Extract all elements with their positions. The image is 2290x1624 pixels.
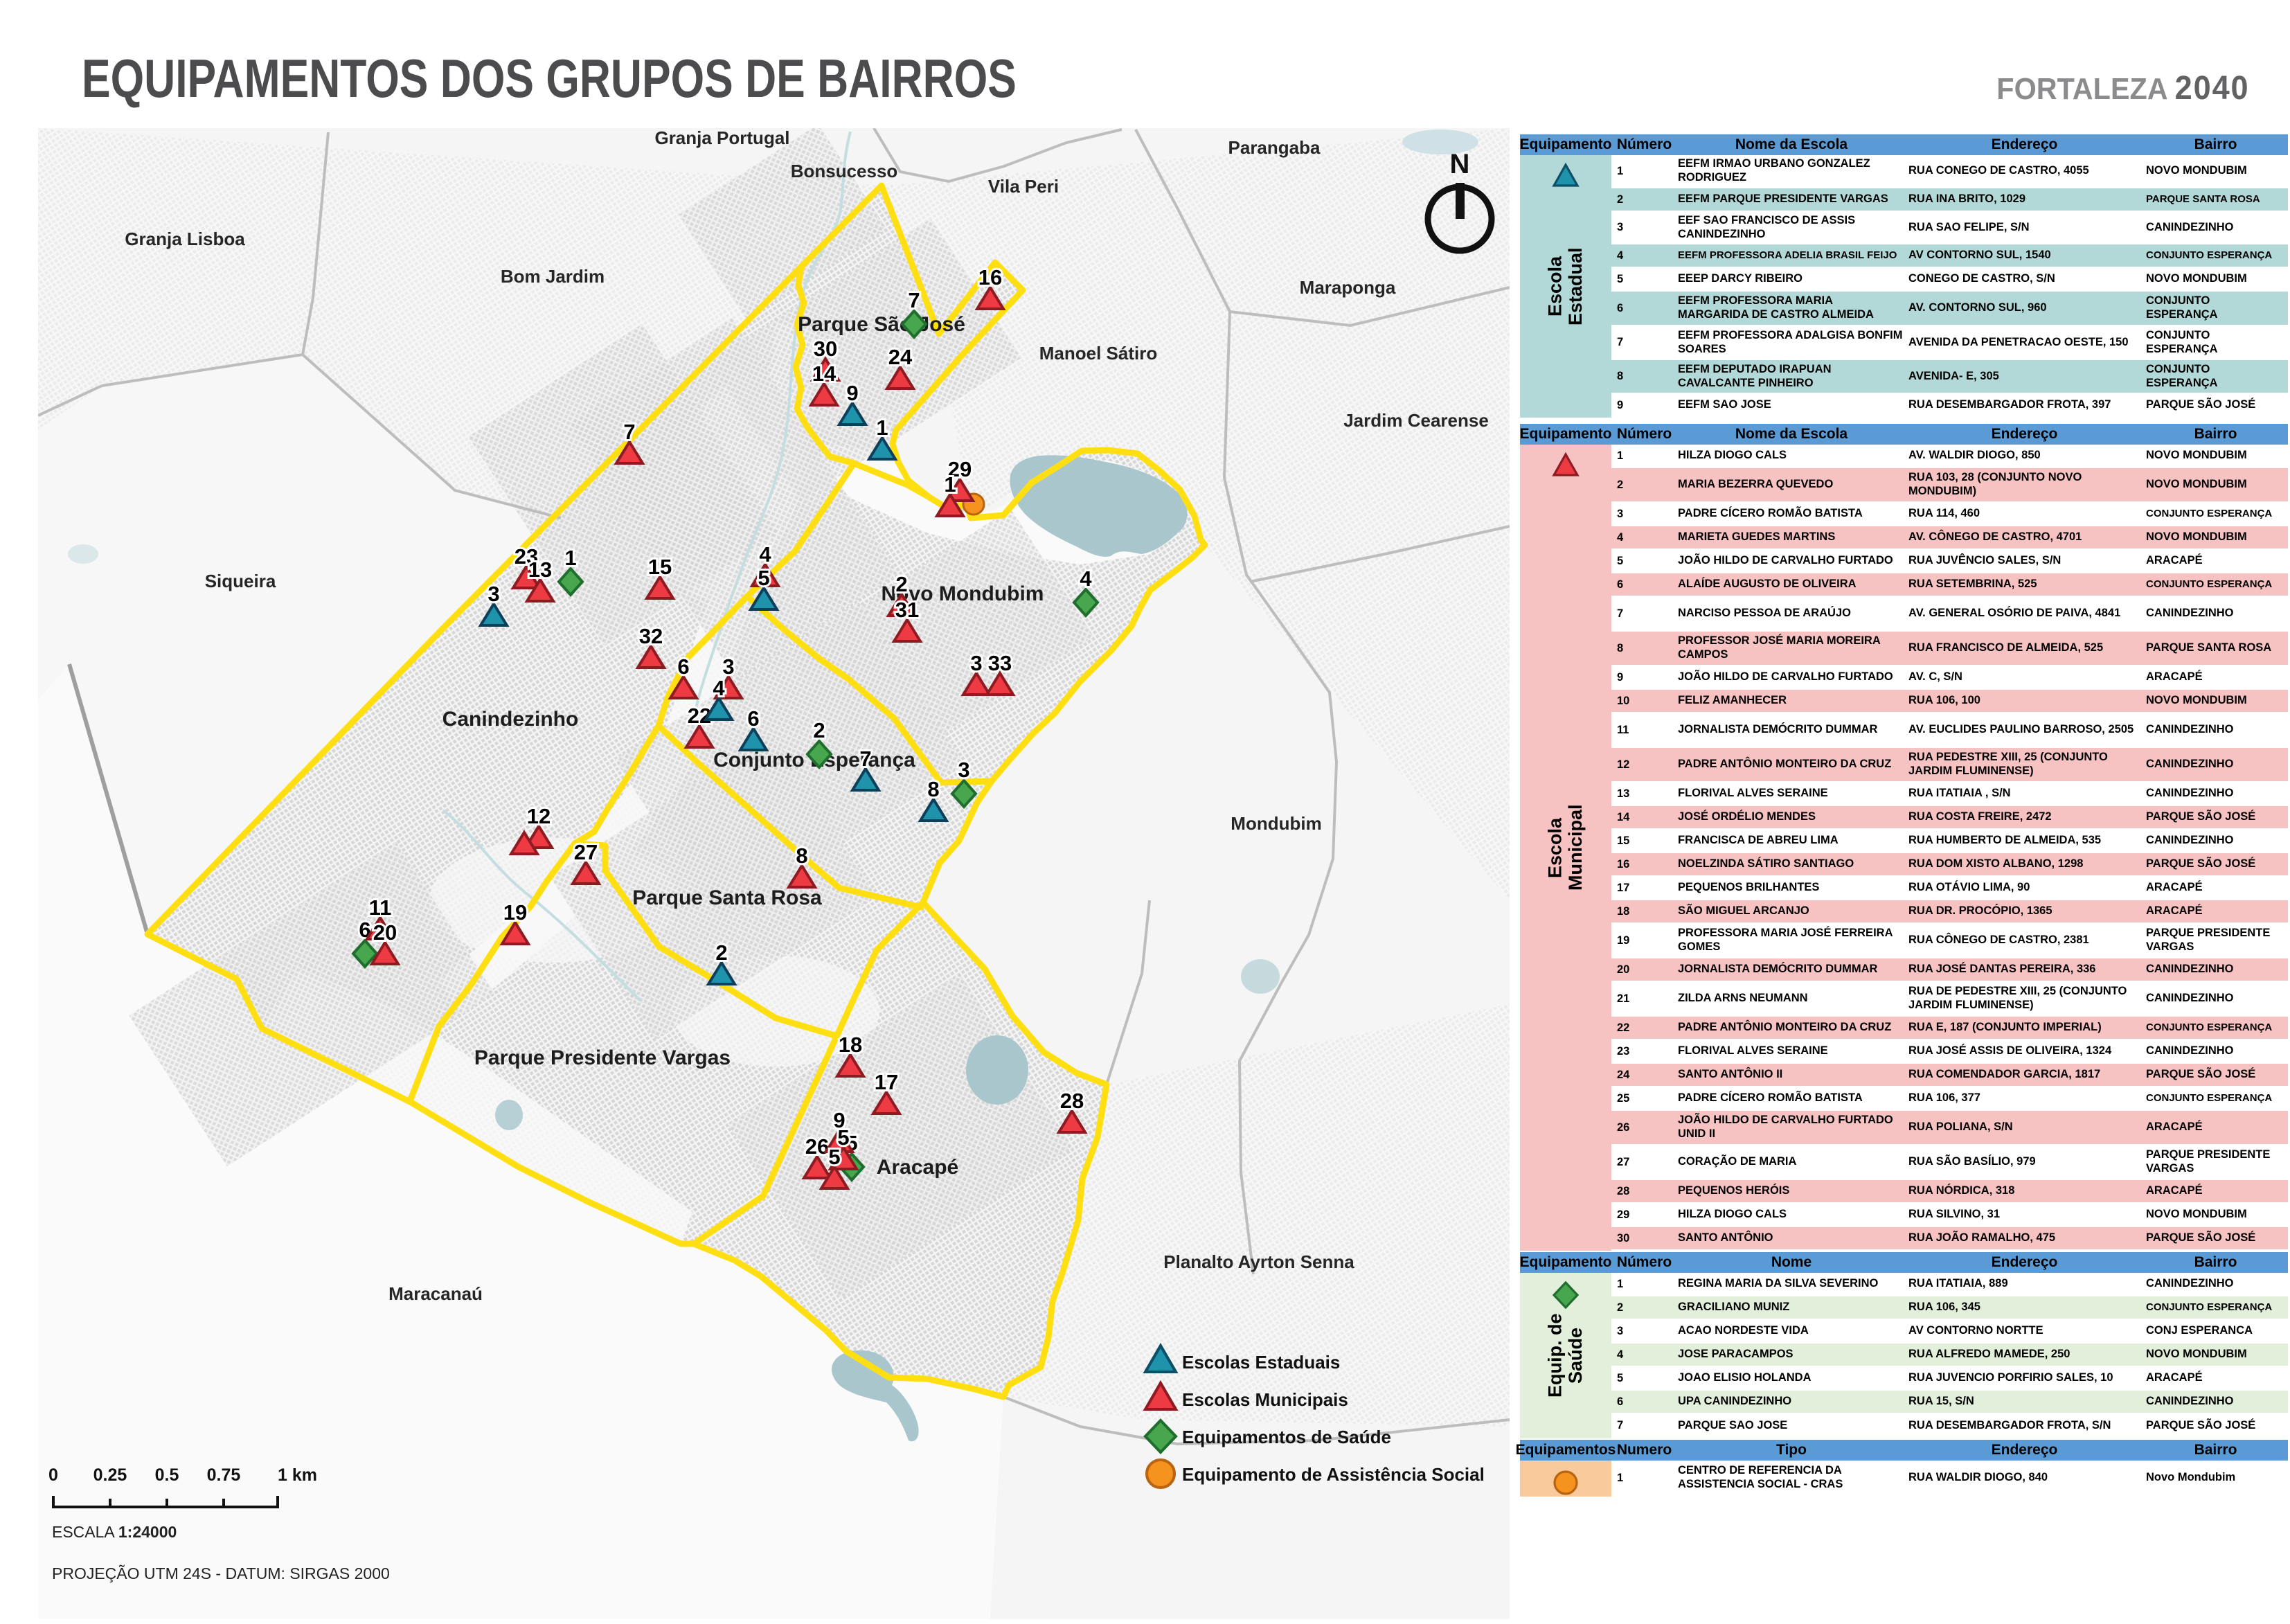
svg-text:Equipamento de Assistência Soc: Equipamento de Assistência Social [1182,1464,1485,1485]
svg-text:Bonsucesso: Bonsucesso [791,161,898,181]
svg-text:31: 31 [895,598,919,622]
svg-text:3: 3 [487,582,499,606]
svg-text:PROJEÇÃO UTM 24S - DATUM: SIRG: PROJEÇÃO UTM 24S - DATUM: SIRGAS 2000 [52,1564,390,1582]
svg-text:1: 1 [564,546,576,570]
svg-text:Escolas Estaduais: Escolas Estaduais [1182,1352,1340,1373]
svg-text:2: 2 [715,940,727,965]
svg-text:30: 30 [814,337,837,361]
svg-text:7: 7 [908,288,920,312]
svg-text:Equipamentos de Saúde: Equipamentos de Saúde [1182,1427,1391,1447]
svg-text:Mondubim: Mondubim [1231,813,1321,834]
svg-text:19: 19 [503,900,527,925]
svg-text:0: 0 [48,1465,58,1485]
svg-text:N: N [1450,149,1470,179]
svg-text:28: 28 [1060,1089,1084,1113]
svg-text:Maraponga: Maraponga [1300,277,1396,298]
svg-text:Escolas Municipais: Escolas Municipais [1182,1389,1348,1410]
svg-text:7: 7 [623,420,635,444]
svg-text:4: 4 [713,676,725,700]
svg-text:4: 4 [759,542,771,566]
svg-text:18: 18 [839,1033,862,1057]
svg-text:0.25: 0.25 [93,1465,127,1485]
svg-text:2: 2 [895,572,907,596]
svg-text:3: 3 [970,651,982,675]
svg-text:Planalto Ayrton Senna: Planalto Ayrton Senna [1163,1251,1354,1272]
svg-text:27: 27 [574,840,598,864]
svg-text:17: 17 [875,1070,898,1094]
svg-text:33: 33 [988,651,1012,675]
svg-text:Manoel Sátiro: Manoel Sátiro [1039,343,1157,364]
svg-text:1 km: 1 km [278,1465,317,1485]
svg-text:Parque Santa Rosa: Parque Santa Rosa [632,886,822,909]
svg-text:0.5: 0.5 [155,1465,179,1485]
svg-text:Maracanaú: Maracanaú [388,1283,483,1304]
svg-text:32: 32 [639,624,663,648]
svg-text:Vila Peri: Vila Peri [988,176,1059,197]
svg-text:24: 24 [888,345,913,369]
svg-text:Canindezinho: Canindezinho [442,708,579,731]
svg-text:16: 16 [978,265,1002,289]
svg-text:Granja Portugal: Granja Portugal [654,128,789,148]
svg-text:7: 7 [859,747,871,771]
svg-text:Bom Jardim: Bom Jardim [501,266,605,287]
svg-text:Jardim Cearense: Jardim Cearense [1343,410,1489,431]
svg-text:3: 3 [958,758,969,782]
svg-text:ESCALA 1:24000: ESCALA 1:24000 [52,1523,177,1541]
svg-text:1: 1 [944,472,956,497]
svg-text:Parangaba: Parangaba [1228,137,1321,158]
svg-text:Parque Presidente Vargas: Parque Presidente Vargas [474,1046,731,1069]
svg-text:15: 15 [648,555,672,579]
svg-text:Siqueira: Siqueira [205,571,276,591]
svg-text:Parque São José: Parque São José [798,313,965,336]
svg-text:11: 11 [369,895,392,920]
svg-text:8: 8 [927,777,939,801]
svg-text:13: 13 [528,557,552,582]
svg-text:3: 3 [722,654,734,679]
svg-text:6: 6 [747,706,759,731]
svg-text:14: 14 [812,362,837,386]
svg-text:20: 20 [373,920,397,945]
svg-text:4: 4 [1080,566,1092,591]
svg-text:5: 5 [828,1145,840,1169]
svg-text:5: 5 [758,566,769,590]
svg-text:8: 8 [796,844,807,868]
svg-text:1: 1 [876,416,888,440]
svg-text:26: 26 [805,1134,829,1159]
svg-text:9: 9 [846,381,858,405]
svg-text:12: 12 [527,804,551,828]
svg-text:Aracapé: Aracapé [877,1156,958,1179]
svg-text:6: 6 [677,654,689,679]
svg-text:Granja Lisboa: Granja Lisboa [125,229,245,249]
svg-text:0.75: 0.75 [207,1465,241,1485]
svg-text:2: 2 [813,718,825,742]
